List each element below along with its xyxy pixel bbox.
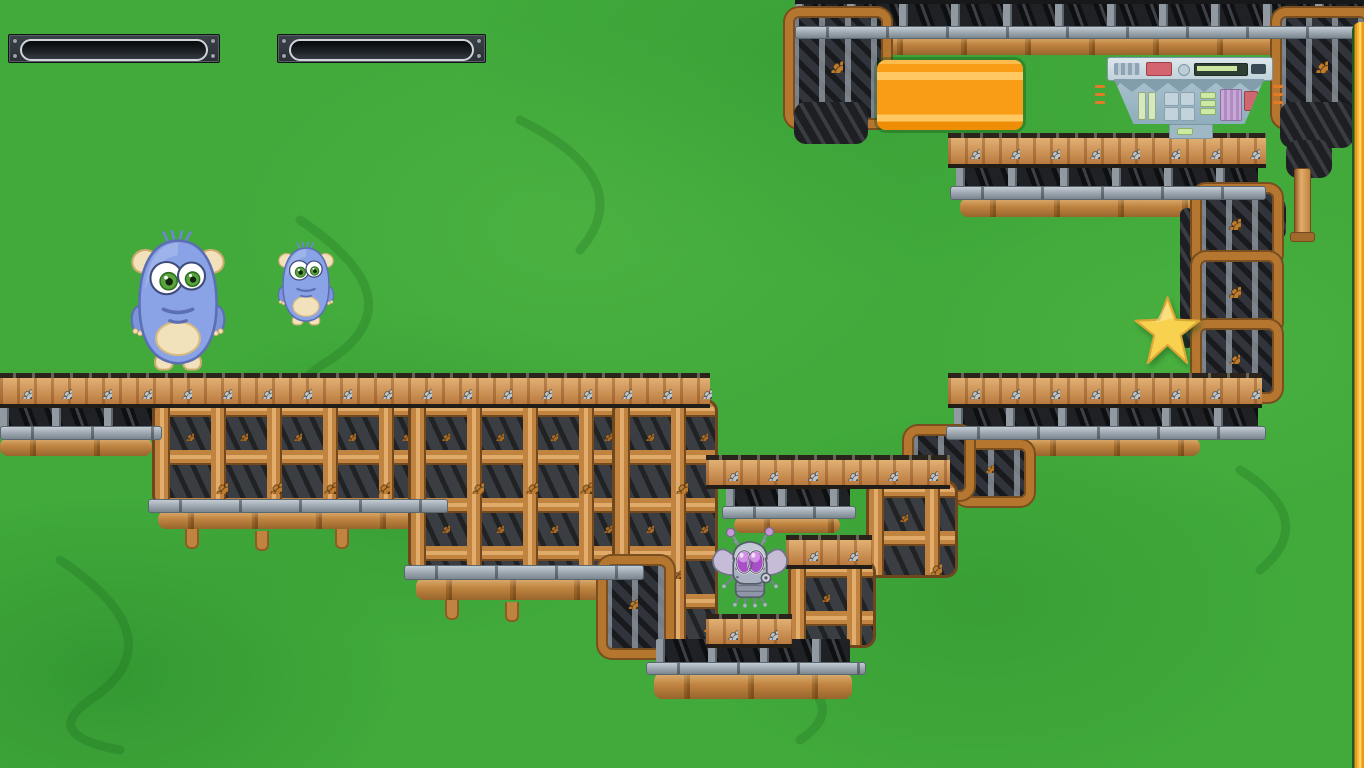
gear-icon (595, 516, 612, 533)
platform-p2-rail (786, 535, 872, 569)
machine-meter (1194, 63, 1248, 76)
gear-icon (1160, 379, 1180, 399)
gear-icon (514, 470, 538, 494)
gear-icon (172, 379, 192, 399)
rivet (211, 39, 215, 43)
gear-icon (568, 470, 592, 494)
gear-icon (758, 461, 778, 481)
gear-icon (1000, 379, 1020, 399)
rivet (477, 39, 481, 43)
machinery-2-beam (404, 565, 644, 580)
machine-green-bar (1138, 92, 1146, 120)
machine-green-pill (1200, 100, 1216, 107)
gear-icon (1200, 139, 1220, 159)
hanging-copper-pipe (1294, 168, 1311, 238)
gear-icon (312, 470, 336, 494)
gear-icon (838, 541, 858, 561)
machine-body (1114, 79, 1264, 124)
pipe-stub (335, 529, 349, 549)
gear-icon (960, 379, 980, 399)
gear-icon (1080, 139, 1100, 159)
machine-bottom-tab (1169, 124, 1213, 139)
gear-icon (918, 461, 938, 481)
gear-icon (878, 461, 898, 481)
gear-icon (918, 551, 942, 575)
star-collectible[interactable] (1131, 296, 1204, 366)
robot-fly[interactable] (708, 518, 792, 616)
gear-icon (637, 424, 654, 441)
monster-small-sprite (275, 241, 337, 327)
machine-key[interactable] (1180, 107, 1195, 121)
machine-red-panel[interactable] (1244, 91, 1258, 111)
rivet (282, 54, 286, 58)
meter-2-track (289, 39, 474, 61)
machine-led (1273, 93, 1283, 96)
gear-icon (1217, 206, 1240, 229)
machine-key[interactable] (1164, 107, 1179, 121)
gear-icon (692, 379, 712, 399)
machinery-1-beam (148, 499, 448, 513)
machine-top-bar (1107, 57, 1273, 81)
gear-icon (978, 457, 993, 472)
machine-green-pill (1200, 108, 1216, 115)
gear-icon (204, 470, 228, 494)
machine-meter-fill (1197, 66, 1237, 71)
ceiling-endcap-left-pipes (794, 102, 868, 144)
gear-icon (1040, 379, 1060, 399)
gear-icon (252, 379, 272, 399)
rivet (13, 39, 17, 43)
gear-icon (960, 139, 980, 159)
machinery-block-2 (408, 399, 646, 573)
gear-icon (1302, 47, 1328, 73)
gear-icon (1040, 139, 1060, 159)
gear-icon (612, 379, 632, 399)
gear-icon (212, 379, 232, 399)
orange-block[interactable] (877, 60, 1023, 130)
gear-icon (1080, 379, 1100, 399)
gear-icon (231, 424, 248, 441)
gear-icon (285, 424, 302, 441)
gear-icon (1240, 139, 1260, 159)
star-icon (1131, 296, 1204, 366)
platform-b-beam (950, 186, 1266, 200)
gear-icon (691, 516, 708, 533)
gear-icon (758, 620, 778, 640)
hud-meter-1 (8, 34, 220, 63)
rivet (211, 54, 215, 58)
gear-icon (664, 470, 688, 494)
rivet (13, 54, 17, 58)
platform-d-rail (948, 373, 1262, 408)
gear-icon (258, 470, 282, 494)
gear-icon (332, 379, 352, 399)
gear-icon (532, 379, 552, 399)
machine-grille (1114, 63, 1140, 75)
machine-key[interactable] (1164, 92, 1179, 106)
machinery-block-4 (866, 480, 958, 578)
platform-l-rail (0, 373, 710, 408)
gear-icon (52, 379, 72, 399)
gear-icon (1120, 139, 1140, 159)
monster-small[interactable] (275, 241, 337, 327)
gear-icon (798, 461, 818, 481)
gear-icon (817, 47, 843, 73)
gear-icon (1240, 379, 1260, 399)
monster-large[interactable] (126, 230, 230, 372)
gear-icon (412, 379, 432, 399)
machine-tab-light (1177, 128, 1193, 135)
machine-green-pill (1200, 92, 1216, 99)
machine-slot (1251, 64, 1266, 74)
gear-icon (452, 379, 472, 399)
gear-icon (1200, 379, 1220, 399)
machinery-block-1 (152, 399, 450, 507)
platform-d-beam (946, 426, 1266, 440)
gear-icon (132, 379, 152, 399)
gear-icon (372, 379, 392, 399)
platform-l-beam (0, 426, 162, 440)
hud-meter-2 (277, 34, 486, 63)
gear-icon (433, 516, 450, 533)
ceiling-beam (795, 26, 1364, 39)
pipe-stub (505, 602, 519, 622)
rivet (282, 39, 286, 43)
pit-base-pipes (654, 673, 852, 699)
machinery-2-pipes (416, 578, 614, 600)
machine-red-button[interactable] (1146, 62, 1172, 76)
gear-icon (618, 589, 638, 609)
gear-icon (891, 505, 908, 522)
machinery-block-5 (788, 560, 876, 648)
gear-icon (92, 379, 112, 399)
gear-icon (691, 424, 708, 441)
pipe-stub (255, 531, 269, 551)
meter-1-track (20, 39, 208, 61)
game-stage (0, 0, 1364, 768)
robot-fly-sprite (708, 518, 792, 616)
gear-icon (487, 516, 504, 533)
gear-icon (637, 516, 654, 533)
gear-icon (487, 424, 504, 441)
machine-key[interactable] (1180, 92, 1195, 106)
gear-icon (292, 379, 312, 399)
gear-icon (1000, 139, 1020, 159)
gear-icon (460, 470, 484, 494)
monster-large-sprite (126, 230, 230, 372)
rivet (477, 54, 481, 58)
gear-icon (12, 379, 32, 399)
gear-icon (652, 379, 672, 399)
machine-led (1095, 85, 1105, 88)
machinery-1-pipes (158, 511, 430, 529)
gear-icon (541, 424, 558, 441)
machine-led (1273, 85, 1283, 88)
machine-led (1273, 101, 1283, 104)
gear-icon (492, 379, 512, 399)
gear-icon (366, 470, 390, 494)
pipe-stub (445, 600, 459, 620)
gear-icon (1217, 274, 1240, 297)
machine-led (1095, 101, 1105, 104)
platform-p1-rail (706, 455, 950, 489)
gear-icon (718, 461, 738, 481)
gear-icon (572, 379, 592, 399)
gear-icon (1120, 379, 1140, 399)
platform-f-rail (706, 614, 792, 648)
pipe-stub (185, 529, 199, 549)
gear-icon (838, 461, 858, 481)
machine-led (1095, 93, 1105, 96)
gear-icon (177, 424, 194, 441)
pit-base-beam (646, 662, 866, 675)
gear-icon (339, 424, 356, 441)
gear-icon (595, 424, 612, 441)
gear-icon (798, 541, 818, 561)
machine-green-bar (1148, 92, 1156, 120)
gear-icon (718, 620, 738, 640)
machine-dial (1178, 64, 1190, 76)
pipe-end-cap (1290, 232, 1315, 242)
machine-purple-panel (1220, 89, 1242, 121)
gear-icon (1218, 342, 1241, 365)
platform-l-pipes (0, 438, 152, 456)
gear-icon (433, 424, 450, 441)
control-machine[interactable] (1107, 57, 1271, 139)
gear-icon (1160, 139, 1180, 159)
gear-icon (541, 516, 558, 533)
level-boundary-wall (1352, 22, 1364, 768)
gear-icon (813, 585, 830, 602)
